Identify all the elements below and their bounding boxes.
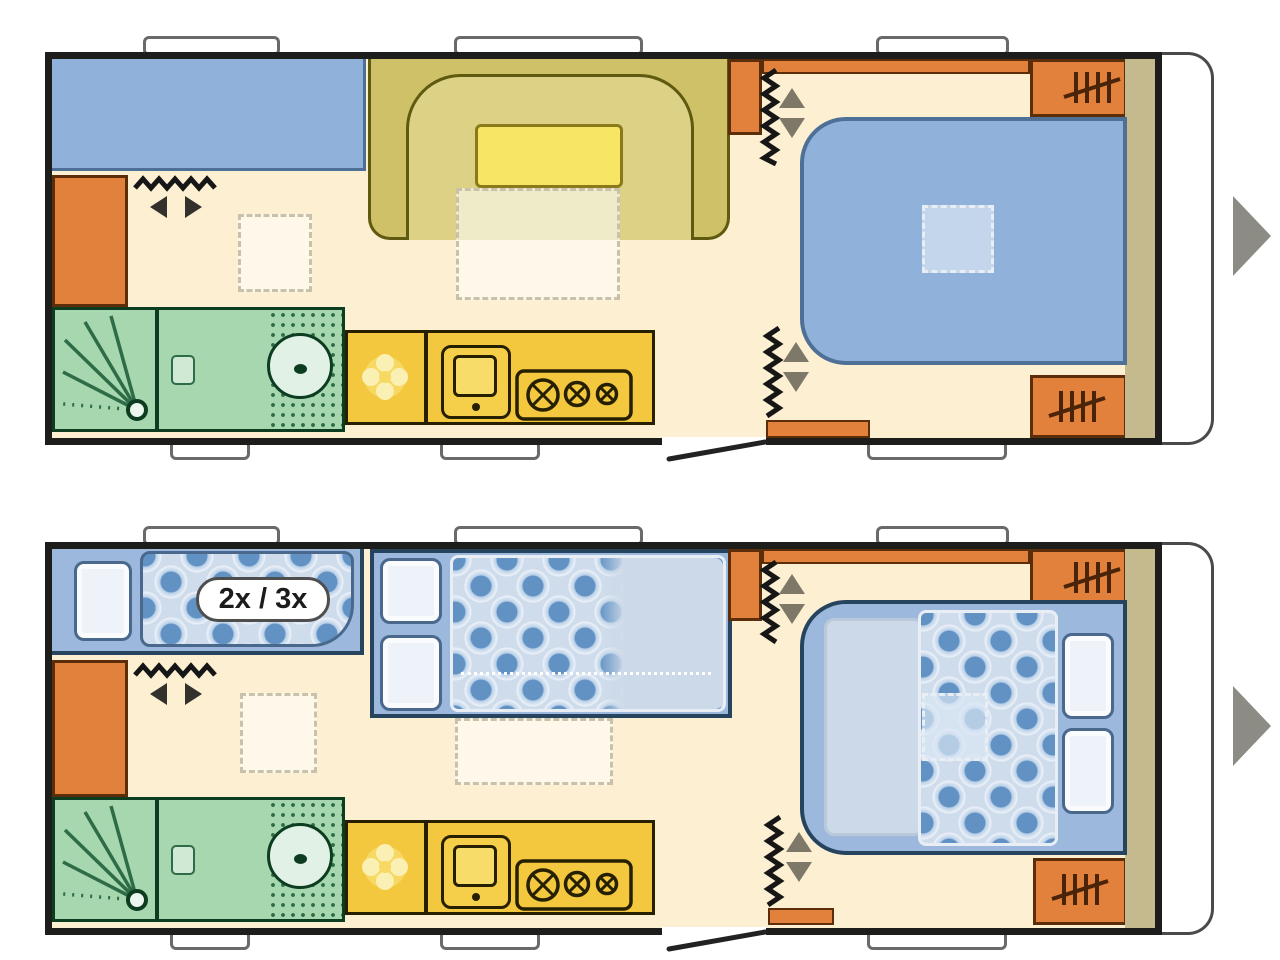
toilet-roll-icon <box>171 355 195 385</box>
wardrobe-front-top <box>1030 59 1127 117</box>
bed-extension-dashed <box>455 718 613 785</box>
overhead-shelf-strip <box>762 549 1030 564</box>
entry-door-swing <box>655 434 775 464</box>
shower-partition <box>155 310 159 429</box>
kitchen <box>345 330 655 425</box>
double-bed <box>800 600 1127 855</box>
bunk-capacity-badge: 2x / 3x <box>196 577 330 622</box>
floorplan-day <box>0 0 1280 490</box>
skylight-dashed <box>922 693 988 761</box>
wardrobe-left <box>52 660 128 797</box>
cabinet-strip <box>766 420 870 438</box>
cabinet-strip <box>768 908 834 925</box>
kitchen-divider <box>424 823 428 912</box>
shower-icon <box>59 314 154 426</box>
toilet-basin-icon <box>267 333 333 399</box>
next-arrow-icon[interactable] <box>1233 686 1271 766</box>
single-bed <box>370 549 732 718</box>
kitchen-divider <box>424 333 428 422</box>
bunk-capacity-label: 2x / 3x <box>219 583 308 616</box>
stove-icon <box>515 369 633 422</box>
slide-direction-arrows-icon <box>150 682 202 706</box>
fridge-vent-icon <box>362 844 408 890</box>
stove-icon <box>515 859 633 912</box>
shower-partition <box>155 800 159 919</box>
toilet-basin-icon <box>267 823 333 889</box>
bed-duvet <box>450 555 726 712</box>
bathroom <box>52 307 345 432</box>
caravan-front-end <box>1157 52 1214 445</box>
sink <box>441 835 511 909</box>
curtain-zigzag-icon <box>133 175 219 193</box>
clothes-rail-icon <box>1060 557 1122 601</box>
bathroom <box>52 797 345 922</box>
wardrobe-front-top <box>1030 549 1127 607</box>
floorplan-image: 2x / 3x <box>0 0 1280 960</box>
entry-door-swing <box>655 924 775 954</box>
kitchen <box>345 820 655 915</box>
pillow <box>380 635 442 711</box>
clothes-rail-icon <box>1048 869 1110 913</box>
skylight-dashed <box>922 205 994 273</box>
pillow <box>1062 633 1114 719</box>
sink-drain <box>472 893 480 901</box>
next-arrow-icon[interactable] <box>1233 196 1271 276</box>
folding-table-dashed <box>238 214 312 292</box>
pillow <box>74 561 132 641</box>
wardrobe-left <box>52 175 128 307</box>
curtain-zigzag-icon <box>133 662 219 680</box>
sink-drain <box>472 403 480 411</box>
bed-sheet <box>824 618 924 836</box>
dinette-table <box>475 124 623 188</box>
open-direction-arrows-icon <box>779 574 805 624</box>
open-direction-arrows-icon <box>783 342 809 392</box>
bed-headboard-strip <box>1125 59 1155 438</box>
bed-headboard-strip <box>1125 549 1155 928</box>
slide-direction-arrows-icon <box>150 195 202 219</box>
floorplan-night: 2x / 3x <box>0 490 1280 960</box>
sink <box>441 345 511 419</box>
folding-table-dashed <box>240 693 317 773</box>
caravan-front-end <box>1157 542 1214 935</box>
pillow <box>1062 728 1114 814</box>
open-direction-arrows-icon <box>779 88 805 138</box>
clothes-rail-icon <box>1045 386 1107 430</box>
overhead-shelf-strip <box>762 59 1030 74</box>
open-direction-arrows-icon <box>786 832 812 882</box>
clothes-rail-icon <box>1060 67 1122 111</box>
fridge-vent-icon <box>362 354 408 400</box>
lounge-sofa <box>52 59 366 171</box>
pillow <box>380 558 442 624</box>
wardrobe-front-bottom <box>1033 858 1127 925</box>
toilet-roll-icon <box>171 845 195 875</box>
fixed-double-bed <box>800 117 1127 365</box>
table-extension-dashed <box>456 188 620 300</box>
shower-icon <box>59 804 154 916</box>
wardrobe-front-bottom <box>1030 375 1127 438</box>
